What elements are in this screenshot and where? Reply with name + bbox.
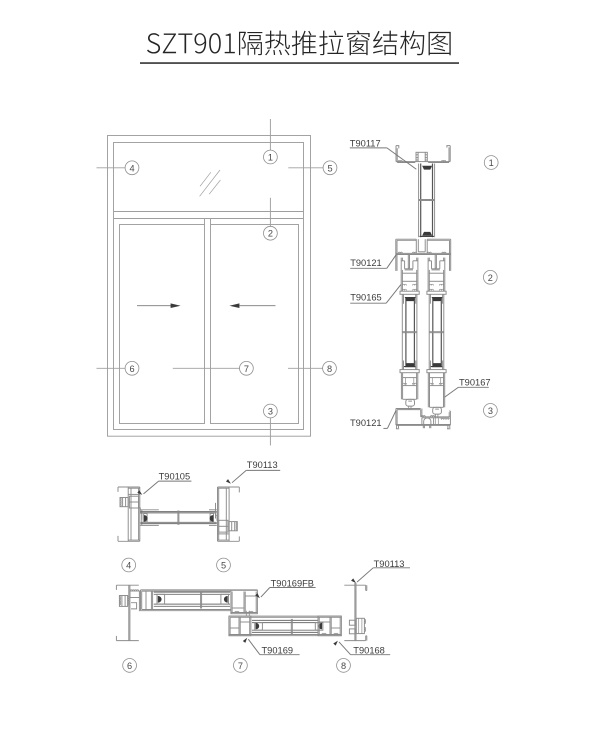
svg-text:3: 3 — [268, 407, 273, 417]
svg-text:T90105: T90105 — [159, 471, 191, 481]
svg-text:2: 2 — [488, 273, 493, 283]
svg-text:T90169: T90169 — [262, 645, 294, 655]
svg-text:7: 7 — [238, 661, 243, 671]
svg-text:1: 1 — [489, 158, 494, 168]
svg-text:4: 4 — [129, 163, 134, 173]
svg-text:T90167: T90167 — [459, 378, 491, 388]
svg-text:6: 6 — [127, 661, 132, 671]
svg-text:8: 8 — [341, 661, 346, 671]
svg-text:T90121: T90121 — [350, 418, 382, 428]
svg-text:7: 7 — [244, 364, 249, 374]
svg-text:T90121: T90121 — [350, 258, 382, 268]
svg-text:T90117: T90117 — [350, 139, 381, 149]
svg-text:T90165: T90165 — [350, 293, 382, 303]
svg-text:4: 4 — [126, 561, 131, 571]
svg-text:T90168: T90168 — [353, 645, 385, 655]
svg-text:5: 5 — [221, 561, 226, 571]
svg-text:6: 6 — [129, 364, 134, 374]
svg-text:T90169FB: T90169FB — [271, 578, 314, 588]
svg-text:2: 2 — [268, 229, 273, 239]
svg-text:3: 3 — [488, 406, 493, 416]
svg-text:T90113: T90113 — [247, 460, 278, 470]
svg-text:8: 8 — [327, 364, 332, 374]
svg-text:1: 1 — [268, 153, 273, 163]
svg-text:5: 5 — [327, 163, 332, 173]
